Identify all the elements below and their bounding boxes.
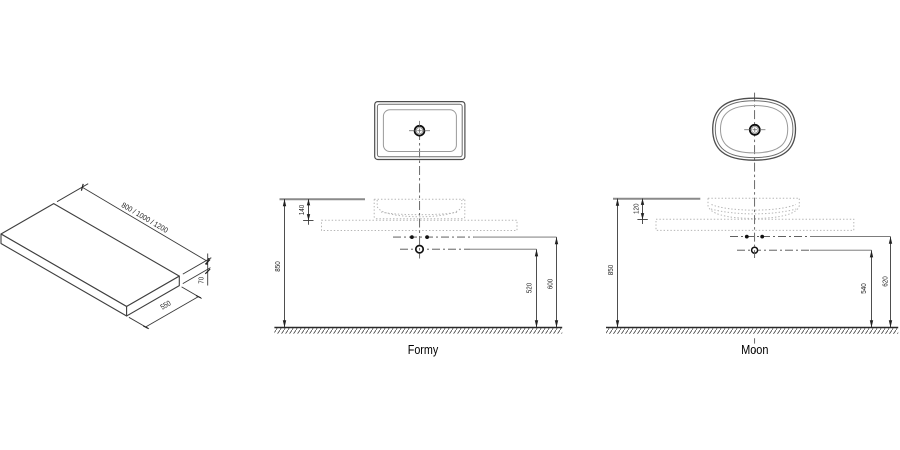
svg-text:520: 520 — [524, 283, 533, 294]
svg-text:850: 850 — [606, 265, 615, 276]
svg-text:140: 140 — [297, 205, 306, 216]
svg-text:620: 620 — [880, 276, 889, 287]
svg-text:70: 70 — [196, 277, 205, 284]
svg-text:120: 120 — [632, 204, 641, 215]
svg-text:600: 600 — [545, 279, 554, 290]
svg-text:Formy: Formy — [408, 342, 439, 357]
svg-text:850: 850 — [273, 261, 282, 272]
svg-text:540: 540 — [859, 283, 868, 294]
svg-text:Moon: Moon — [741, 342, 768, 357]
